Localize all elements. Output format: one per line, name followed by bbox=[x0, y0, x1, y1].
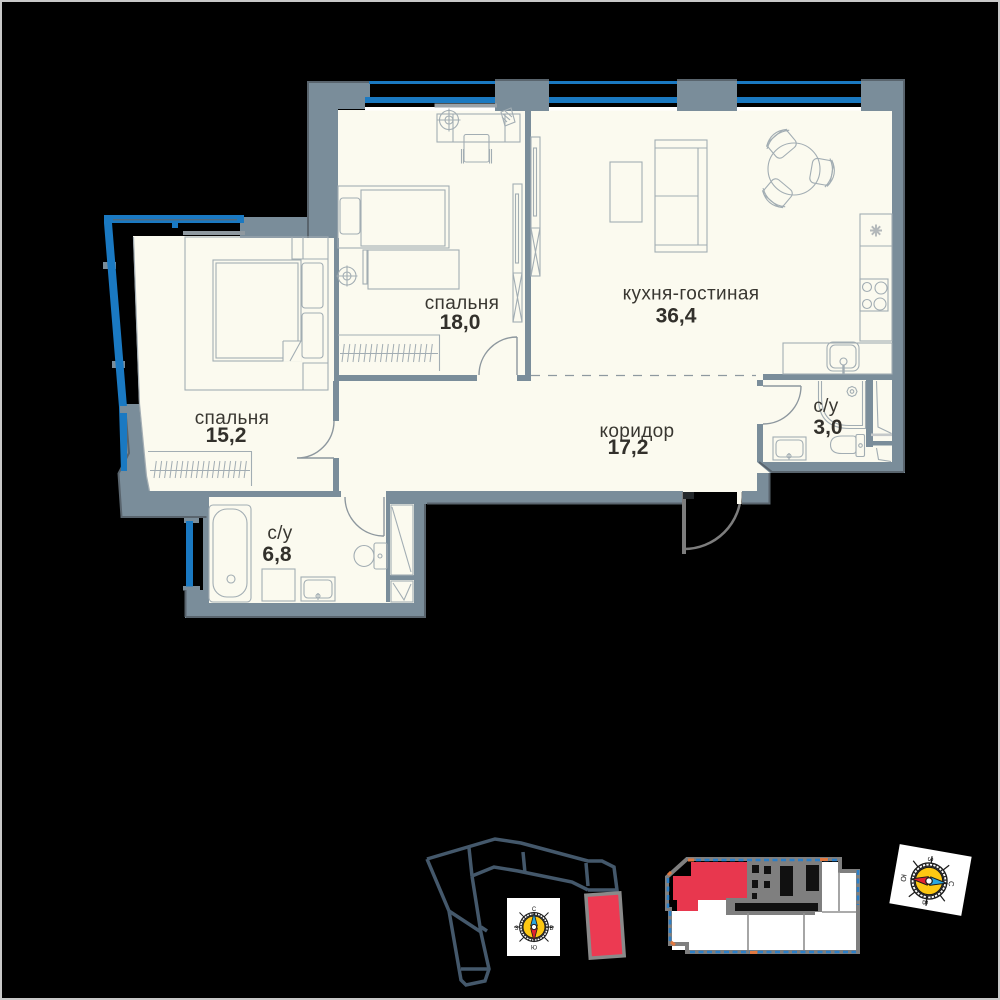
svg-text:С: С bbox=[532, 907, 537, 913]
svg-text:36,4: 36,4 bbox=[656, 305, 697, 328]
svg-text:с/у: с/у bbox=[813, 396, 838, 417]
svg-text:кухня-гостиная: кухня-гостиная bbox=[623, 284, 760, 305]
svg-text:Ю: Ю bbox=[899, 874, 909, 883]
svg-text:17,2: 17,2 bbox=[608, 436, 649, 459]
svg-text:В: В bbox=[549, 926, 553, 932]
svg-text:6,8: 6,8 bbox=[262, 543, 292, 566]
svg-text:3,0: 3,0 bbox=[813, 416, 842, 439]
svg-text:15,2: 15,2 bbox=[206, 424, 247, 447]
svg-text:18,0: 18,0 bbox=[440, 311, 481, 334]
svg-text:З: З bbox=[515, 926, 519, 932]
svg-text:Ю: Ю bbox=[531, 946, 537, 952]
svg-text:В: В bbox=[920, 900, 930, 906]
svg-text:с/у: с/у bbox=[267, 523, 292, 544]
